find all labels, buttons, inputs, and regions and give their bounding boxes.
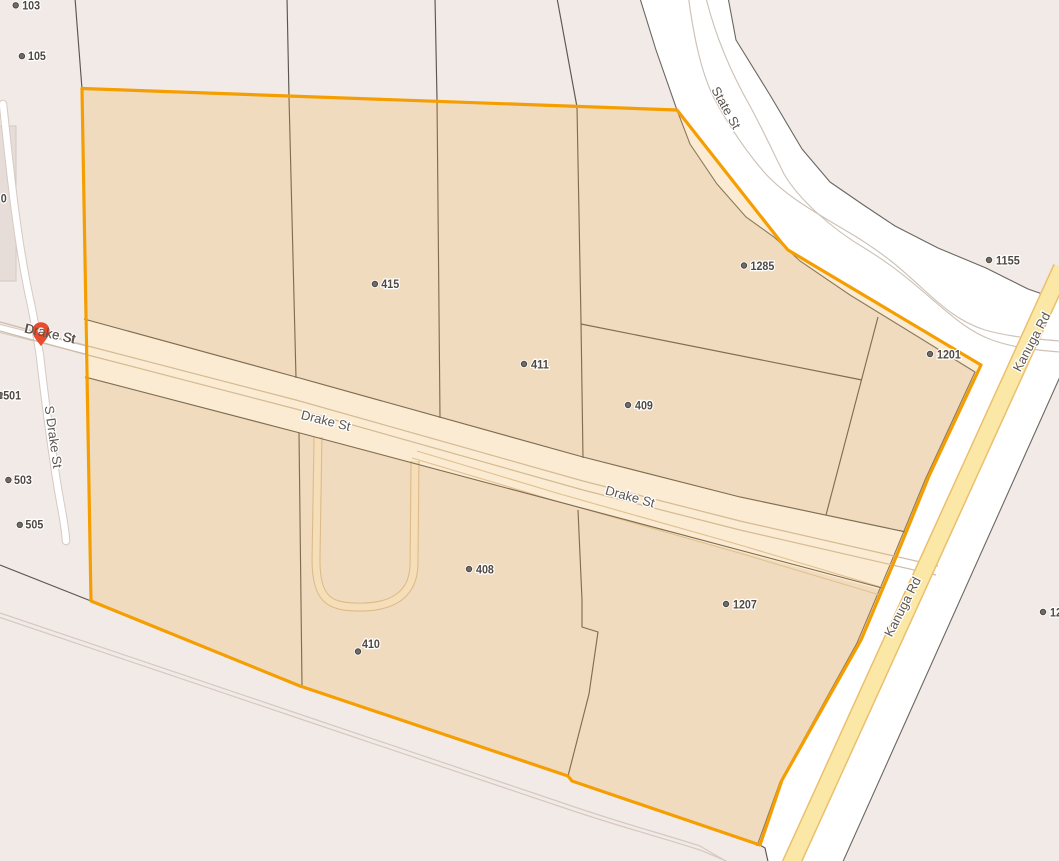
svg-text:1207: 1207 (733, 598, 757, 612)
svg-text:1285: 1285 (751, 259, 775, 273)
svg-text:501: 501 (3, 389, 21, 403)
svg-text:408: 408 (476, 563, 494, 577)
svg-text:415: 415 (381, 277, 399, 291)
svg-text:1201: 1201 (937, 348, 961, 362)
svg-text:410: 410 (362, 637, 380, 651)
svg-text:505: 505 (25, 518, 43, 532)
svg-text:411: 411 (531, 358, 549, 372)
svg-text:105: 105 (28, 49, 46, 63)
svg-text:503: 503 (14, 473, 32, 487)
svg-text:1155: 1155 (996, 254, 1020, 268)
svg-text:409: 409 (635, 399, 653, 413)
svg-text:0: 0 (1, 192, 7, 206)
svg-text:12: 12 (1050, 606, 1059, 620)
svg-text:103: 103 (22, 0, 40, 12)
